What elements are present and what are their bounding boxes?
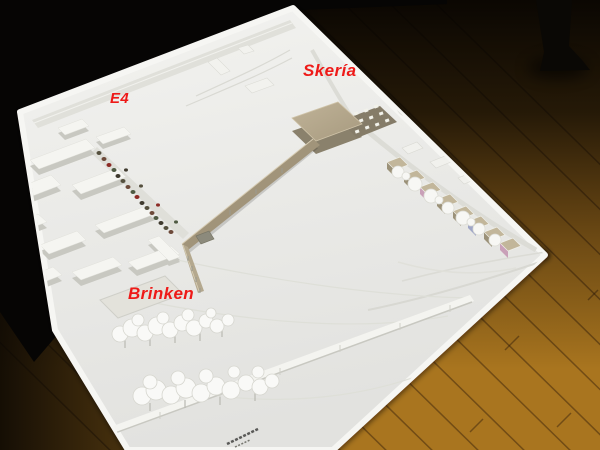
skeria-label: Skería bbox=[303, 61, 356, 81]
photograph-architectural-model: Skería E4 Brinken bbox=[0, 0, 600, 450]
e4-label: E4 bbox=[110, 90, 129, 107]
model-scene bbox=[0, 0, 600, 450]
brinken-label: Brinken bbox=[128, 284, 194, 304]
